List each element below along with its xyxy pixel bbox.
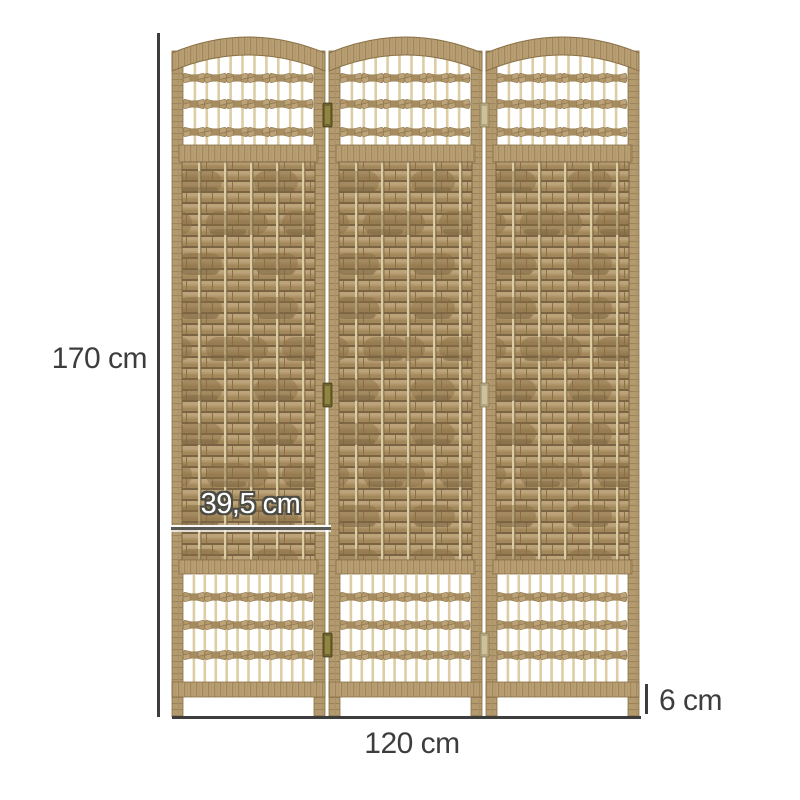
panel-width-dimension-line xyxy=(171,527,331,530)
divider-panel-left xyxy=(172,37,325,717)
product-dimension-diagram: 170 cm 39,5 cm 120 cm 6 cm xyxy=(0,0,800,800)
divider-panel-right xyxy=(486,37,639,717)
foot-height-label: 6 cm xyxy=(659,684,722,717)
room-divider-illustration xyxy=(0,0,800,800)
total-width-label: 120 cm xyxy=(350,727,474,760)
height-dimension-line xyxy=(157,33,160,717)
height-label: 170 cm xyxy=(17,342,147,375)
foot-height-tick-line xyxy=(645,684,648,714)
divider-panel-center xyxy=(329,37,482,717)
panel-width-label: 39,5 cm xyxy=(168,489,333,521)
total-width-dimension-line xyxy=(172,716,641,719)
